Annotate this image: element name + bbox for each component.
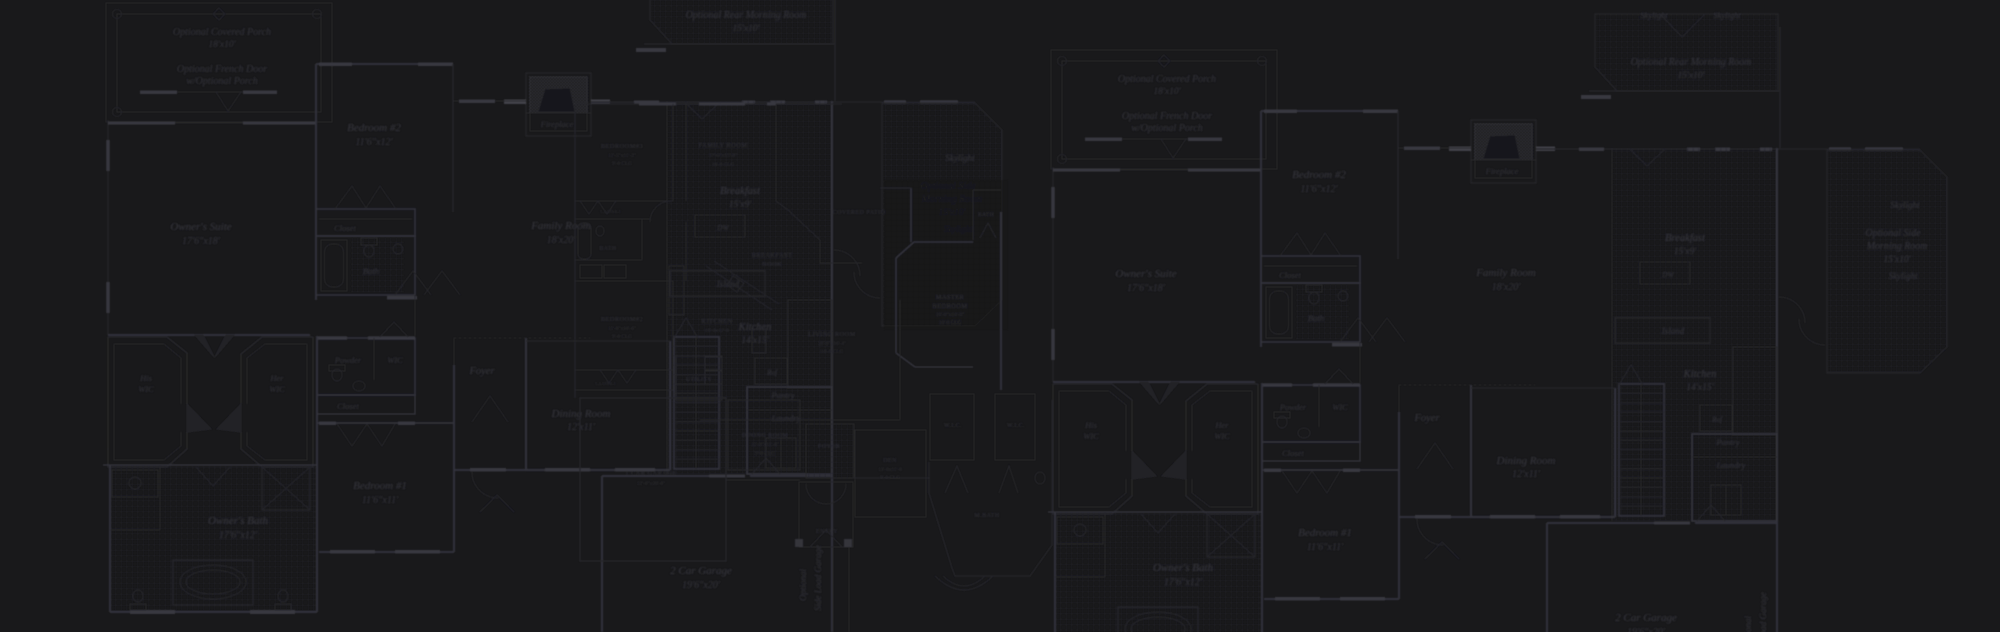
svg-text:DINING ROOM: DINING ROOM: [742, 433, 788, 439]
svg-text:CLOSET: CLOSET: [595, 382, 616, 387]
svg-text:NOOK: NOOK: [762, 261, 782, 268]
svg-text:10'-0 CLG: 10'-0 CLG: [939, 320, 962, 326]
svg-text:COVERED PATIO: COVERED PATIO: [833, 210, 886, 216]
svg-text:9'-0 CLG: 9'-0 CLG: [612, 161, 632, 167]
svg-text:18'-0"x16'-4": 18'-0"x16'-4": [818, 341, 846, 347]
svg-text:12'-0"x11'-0": 12'-0"x11'-0": [751, 442, 779, 448]
svg-text:FAMILY ROOM: FAMILY ROOM: [699, 142, 748, 149]
svg-text:FOYER: FOYER: [818, 444, 840, 450]
svg-text:12'-0"x20'-0": 12'-0"x20'-0": [637, 481, 665, 487]
svg-text:KITCHEN: KITCHEN: [701, 318, 732, 325]
svg-text:17'-0"x15'-8": 17'-0"x15'-8": [709, 153, 737, 159]
svg-text:ENTRY: ENTRY: [816, 529, 838, 535]
svg-text:11'-0"x10'-6": 11'-0"x10'-6": [608, 326, 636, 332]
svg-text:BEDROOM#3: BEDROOM#3: [601, 143, 643, 150]
svg-text:UTILITY: UTILITY: [686, 377, 713, 383]
svg-text:BEDROOM#2: BEDROOM#2: [601, 316, 643, 323]
svg-text:9'-0 CLG: 9'-0 CLG: [612, 334, 632, 340]
svg-text:BEDROOM: BEDROOM: [933, 303, 968, 310]
svg-text:CLOSET: CLOSET: [600, 210, 621, 215]
svg-text:10'-0x12'-0: 10'-0x12'-0: [705, 328, 729, 334]
svg-text:13'-0x11'-0: 13'-0x11'-0: [878, 467, 902, 473]
svg-text:10'-0 CLG: 10'-0 CLG: [712, 162, 735, 168]
svg-text:LIVING ROOM: LIVING ROOM: [808, 331, 856, 338]
svg-text:W.I.C.: W.I.C.: [1007, 423, 1025, 429]
svg-text:W.I.C.: W.I.C.: [944, 423, 962, 429]
svg-text:16'-0"x14'-8": 16'-0"x14'-8": [936, 312, 964, 318]
svg-text:12'-5"x11'-2": 12'-5"x11'-2": [608, 153, 636, 159]
svg-text:BREAKFAST: BREAKFAST: [752, 252, 793, 259]
svg-text:10'-0 CLG: 10'-0 CLG: [821, 349, 844, 355]
svg-text:9'-0 CLG: 9'-0 CLG: [755, 451, 775, 457]
svg-text:DEN: DEN: [883, 458, 897, 464]
svg-text:M.BATH: M.BATH: [974, 513, 1000, 519]
svg-text:MASTER: MASTER: [936, 294, 965, 301]
svg-text:1 CAR GARAGE: 1 CAR GARAGE: [625, 470, 676, 477]
svg-text:BATH: BATH: [978, 212, 994, 218]
svg-text:BATH: BATH: [599, 246, 616, 252]
